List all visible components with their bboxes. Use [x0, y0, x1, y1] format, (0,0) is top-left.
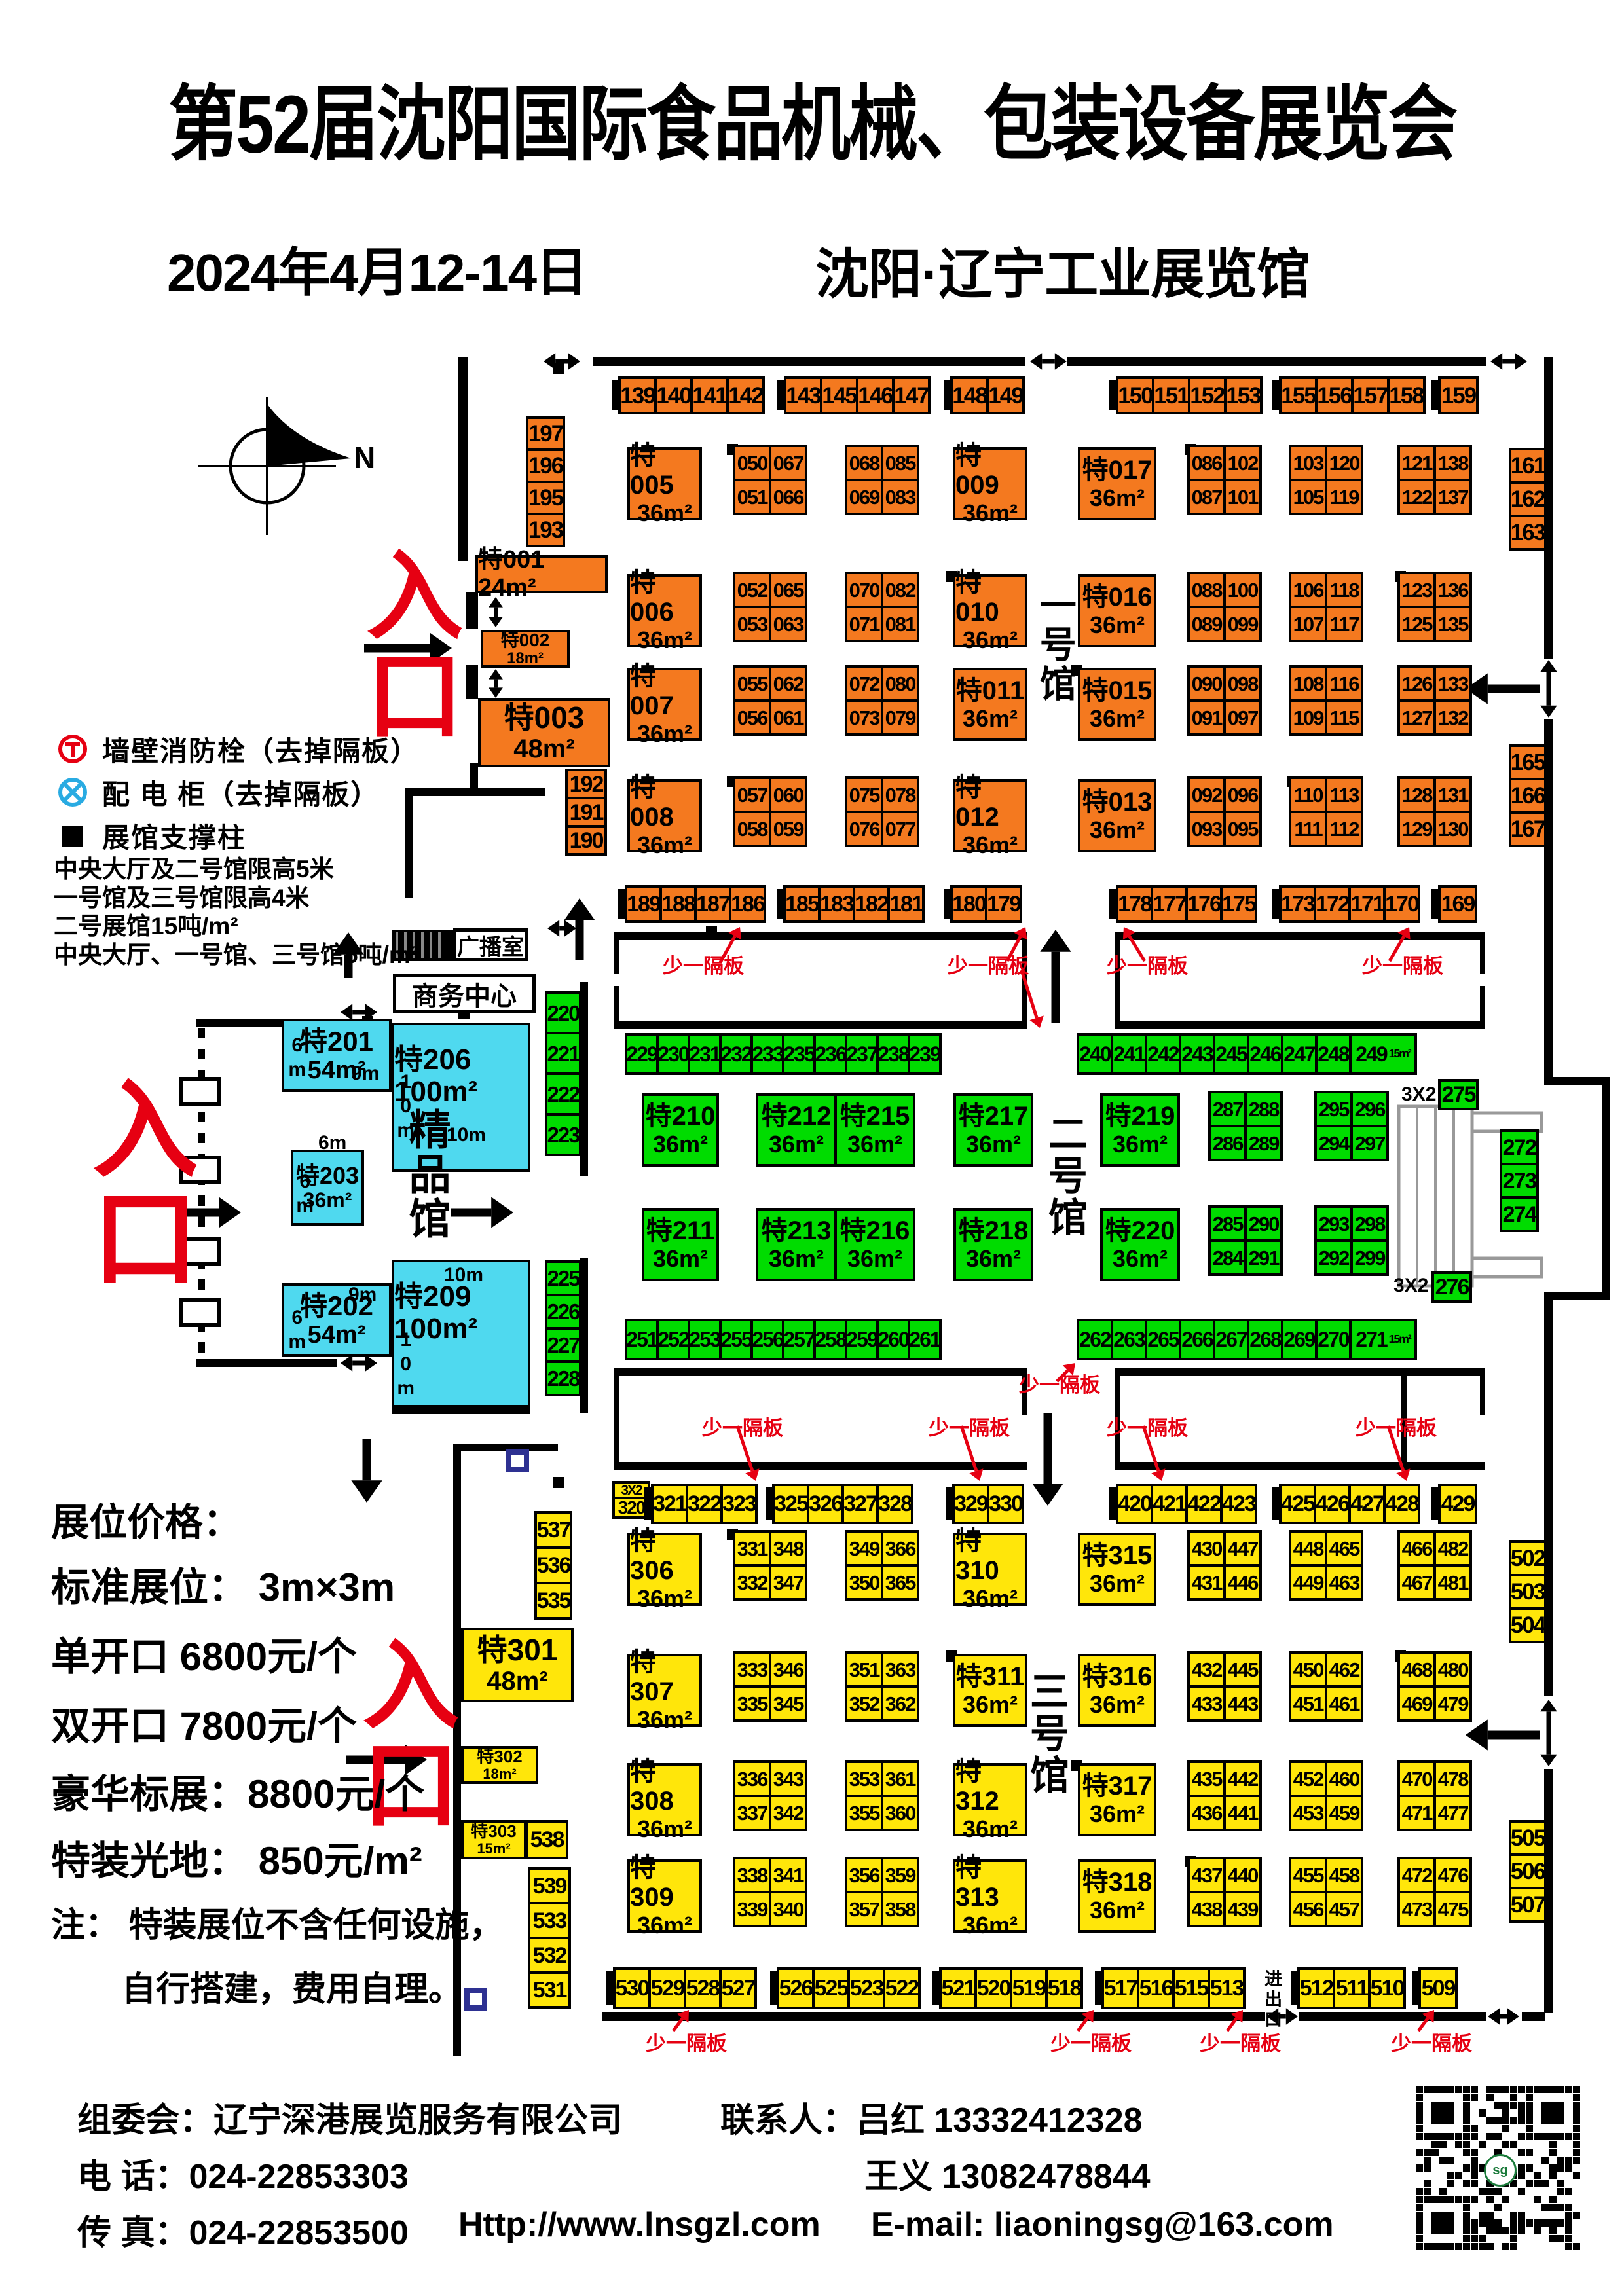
booth-strip: 180179 [953, 885, 1022, 923]
booth-228: 228 [545, 1360, 581, 1396]
booth-057: 057 [733, 776, 771, 813]
booth-473: 473 [1397, 1891, 1436, 1927]
booth-529: 529 [648, 1967, 686, 2009]
wall-stub [1431, 889, 1441, 919]
booth-502: 502 [1509, 1540, 1547, 1576]
booth-特315: 特31536m² [1078, 1533, 1156, 1606]
booth-230: 230 [656, 1033, 690, 1075]
booth-352: 352 [845, 1685, 883, 1722]
booth-strip: 537536535 [534, 1514, 572, 1620]
booth-strip: 148149 [953, 376, 1025, 414]
booth-strip: 429 [1441, 1484, 1477, 1524]
booth-453: 453 [1289, 1795, 1327, 1831]
booth-178: 178 [1116, 885, 1153, 923]
wall-stub [770, 1971, 779, 2005]
label-少一隔板: 少一隔板 [1019, 1375, 1100, 1396]
booth-477: 477 [1433, 1795, 1472, 1831]
booth-特006: 特00636m² [627, 574, 702, 647]
wall-stub [932, 1971, 942, 2005]
booth-243: 243 [1179, 1033, 1215, 1075]
booth-grid: 432445433443 [1190, 1654, 1262, 1722]
booth-特010: 特01036m² [953, 574, 1027, 647]
booth-特301: 特30148m² [461, 1628, 574, 1702]
booth-089: 089 [1187, 606, 1226, 642]
booth-158: 158 [1387, 376, 1426, 414]
booth-strip: 321322323 [654, 1484, 758, 1524]
booth-139: 139 [618, 376, 657, 414]
booth-165: 165 [1509, 744, 1547, 780]
booth-特218: 特21836m² [953, 1208, 1033, 1281]
wall-stub [1095, 1971, 1104, 2005]
booth-458: 458 [1325, 1857, 1363, 1893]
booth-299: 299 [1350, 1239, 1389, 1276]
booth-strip: 272273274 [1500, 1132, 1539, 1232]
booth-536: 536 [534, 1546, 572, 1584]
booth-245: 245 [1213, 1033, 1249, 1075]
booth-特313: 特31336m² [953, 1859, 1027, 1933]
booth-071: 071 [845, 606, 883, 642]
booth-248: 248 [1315, 1033, 1352, 1075]
label-少一隔板: 少一隔板 [1362, 956, 1443, 977]
booth-strip: 526525523522 [779, 1967, 921, 2009]
booth-087: 087 [1187, 479, 1226, 515]
booth-strip: 229230231232233235236237238239 [627, 1033, 942, 1075]
booth-143: 143 [784, 376, 822, 414]
booth-179: 179 [985, 885, 1022, 923]
booth-080: 080 [881, 665, 919, 702]
booth-459: 459 [1325, 1795, 1363, 1831]
booth-115: 115 [1325, 699, 1363, 736]
booth-strip: 420421422423 [1118, 1484, 1257, 1524]
wall-stub [1272, 1487, 1282, 1520]
booth-149: 149 [986, 376, 1025, 414]
entrance-2-label: 入口 [80, 1074, 190, 1291]
wall-stub [944, 889, 953, 919]
booth-466: 466 [1397, 1530, 1436, 1567]
booth-225: 225 [545, 1260, 581, 1296]
booth-286: 286 [1208, 1125, 1247, 1161]
booth-strip: 185183182181 [786, 885, 925, 923]
wall-stub [766, 1487, 775, 1520]
booth-427: 427 [1348, 1484, 1386, 1524]
booth-447: 447 [1223, 1530, 1262, 1567]
booth-470: 470 [1397, 1760, 1436, 1797]
booth-125: 125 [1397, 606, 1436, 642]
booth-271: 27115m² [1349, 1319, 1417, 1360]
label-10m: 10m [447, 1125, 486, 1145]
booth-170: 170 [1383, 885, 1420, 923]
booth-082: 082 [881, 572, 919, 608]
booth-091: 091 [1187, 699, 1226, 736]
booth-269: 269 [1281, 1319, 1318, 1360]
booth-strip: 197196195193 [526, 419, 565, 547]
booth-grid: 090098091097 [1190, 668, 1262, 736]
booth-261: 261 [908, 1319, 942, 1360]
booth-505: 505 [1509, 1820, 1547, 1856]
booth-357: 357 [845, 1891, 883, 1927]
wall-stub [612, 380, 621, 410]
booth-341: 341 [769, 1857, 807, 1893]
booth-strip: 143145146147 [786, 376, 931, 414]
booth-058: 058 [733, 811, 771, 847]
booth-518: 518 [1045, 1967, 1083, 2009]
booth-482: 482 [1433, 1530, 1472, 1567]
booth-450: 450 [1289, 1651, 1327, 1688]
booth-grid: 128131129130 [1400, 779, 1472, 847]
booth-067: 067 [769, 445, 807, 481]
booth-257: 257 [782, 1319, 816, 1360]
pricing-note-2: 自行搭建，费用自理。 [122, 1961, 462, 2011]
booth-292: 292 [1314, 1239, 1353, 1276]
booth-322: 322 [686, 1484, 723, 1524]
booth-grid: 336343337342 [735, 1763, 807, 1831]
booth-451: 451 [1289, 1685, 1327, 1722]
booth-516: 516 [1137, 1967, 1175, 2009]
booth-268: 268 [1247, 1319, 1283, 1360]
booth-156: 156 [1315, 376, 1354, 414]
booth-grid: 356359357358 [847, 1859, 919, 1927]
label-少一隔板: 少一隔板 [1391, 2033, 1472, 2054]
booth-特012: 特01236m² [953, 779, 1027, 852]
booth-grid: 126133127132 [1400, 668, 1472, 736]
booth-特009: 特00936m² [953, 447, 1027, 520]
booth-093: 093 [1187, 811, 1226, 847]
booth-426: 426 [1314, 1484, 1351, 1524]
booth-132: 132 [1433, 699, 1472, 736]
booth-431: 431 [1187, 1564, 1226, 1601]
booth-特017: 特01736m² [1078, 447, 1156, 520]
booth-330: 330 [987, 1484, 1024, 1524]
booth-特216: 特21636m² [834, 1208, 915, 1281]
booth-191: 191 [565, 797, 607, 828]
booth-355: 355 [845, 1795, 883, 1831]
booth-strip: 329330 [955, 1484, 1024, 1524]
hall-label-三号馆: 三号馆 [1025, 1671, 1066, 1796]
booth-343: 343 [769, 1760, 807, 1797]
booth-478: 478 [1433, 1760, 1472, 1797]
booth-特307: 特30736m² [627, 1654, 702, 1727]
booth-433: 433 [1187, 1685, 1226, 1722]
booth-136: 136 [1433, 572, 1472, 608]
contact-person: 联系人：吕红 13332412328 [720, 2092, 1143, 2141]
wall-stub [1431, 1487, 1441, 1520]
booth-526: 526 [777, 1967, 815, 2009]
booth-grid: 055062056061 [735, 668, 807, 736]
booth-455: 455 [1289, 1857, 1327, 1893]
booth-265: 265 [1145, 1319, 1181, 1360]
booth-grid: 110113111112 [1291, 779, 1363, 847]
booth-175: 175 [1220, 885, 1257, 923]
pricing-single: 单开口 6800元/个 [51, 1625, 357, 1682]
booth-242: 242 [1145, 1033, 1181, 1075]
booth-grid: 052065053063 [735, 574, 807, 642]
booth-189: 189 [625, 885, 662, 923]
booth-446: 446 [1223, 1564, 1262, 1601]
label-少一隔板: 少一隔板 [1200, 2033, 1281, 2054]
booth-layer: 1391401411421431451461471481491501511521… [0, 0, 1624, 2296]
booth-特007: 特00736m² [627, 668, 702, 741]
booth-358: 358 [881, 1891, 919, 1927]
booth-332: 332 [733, 1564, 771, 1601]
booth-118: 118 [1325, 572, 1363, 608]
booth-249: 24915m² [1349, 1033, 1417, 1075]
booth-strip: 276 [1434, 1271, 1472, 1303]
booth-strip: 139140141142 [621, 376, 765, 414]
booth-241: 241 [1111, 1033, 1147, 1075]
booth-295: 295 [1314, 1091, 1353, 1127]
legend: 墙壁消防栓（去掉隔板） 配 电 柜（去掉隔板） 展馆支撑柱 [58, 732, 419, 862]
booth-240: 240 [1077, 1033, 1113, 1075]
booth-350: 350 [845, 1564, 883, 1601]
booth-472: 472 [1397, 1857, 1436, 1893]
exit-label: 进出口 [1263, 1969, 1281, 2030]
qr-code: sg [1416, 2086, 1581, 2251]
booth-361: 361 [881, 1760, 919, 1797]
broadcast-room: 广播室 [453, 928, 528, 961]
booth-155: 155 [1279, 376, 1318, 414]
wall-stub [1272, 380, 1282, 410]
booth-grid: 455458456457 [1291, 1859, 1363, 1927]
pricing-heading: 展位价格： [51, 1491, 241, 1546]
legend-fire-hydrant: 墙壁消防栓（去掉隔板） [58, 732, 419, 766]
booth-特310: 特31036m² [953, 1533, 1027, 1606]
booth-grid: 331348332347 [735, 1533, 807, 1601]
booth-479: 479 [1433, 1685, 1472, 1722]
booth-263: 263 [1111, 1319, 1147, 1360]
label-9m: 9m [348, 1285, 377, 1305]
booth-grid: 437440438439 [1190, 1859, 1262, 1927]
booth-366: 366 [881, 1530, 919, 1567]
compass-n-label: N [354, 443, 375, 474]
booth-grid: 092096093095 [1190, 779, 1262, 847]
booth-053: 053 [733, 606, 771, 642]
booth-222: 222 [545, 1072, 581, 1116]
booth-233: 233 [750, 1033, 784, 1075]
booth-421: 421 [1151, 1484, 1188, 1524]
booth-221: 221 [545, 1032, 581, 1075]
booth-435: 435 [1187, 1760, 1226, 1797]
booth-527: 527 [719, 1967, 757, 2009]
booth-特212: 特21236m² [756, 1093, 837, 1167]
booth-247: 247 [1281, 1033, 1318, 1075]
booth-特002: 特00218m² [481, 630, 570, 668]
booth-272: 272 [1500, 1129, 1539, 1165]
booth-223: 223 [545, 1113, 581, 1156]
booth-116: 116 [1325, 665, 1363, 702]
booth-特316: 特31636m² [1078, 1654, 1156, 1727]
legend-pillar: 展馆支撑柱 [58, 818, 419, 852]
booth-特015: 特01536m² [1078, 668, 1156, 741]
booth-251: 251 [625, 1319, 659, 1360]
booth-521: 521 [939, 1967, 977, 2009]
contact-phone: 电 话：024-22853303 [77, 2149, 409, 2198]
booth-182: 182 [853, 885, 890, 923]
booth-特003: 特00348m² [478, 698, 610, 767]
booth-442: 442 [1223, 1760, 1262, 1797]
stair-dim-bottom: 3X2 [1393, 1275, 1428, 1296]
booth-363: 363 [881, 1651, 919, 1688]
booth-056: 056 [733, 699, 771, 736]
booth-528: 528 [684, 1967, 722, 2009]
booth-336: 336 [733, 1760, 771, 1797]
booth-511: 511 [1333, 1967, 1371, 2009]
booth-特213: 特21336m² [756, 1208, 837, 1281]
booth-086: 086 [1187, 445, 1226, 481]
booth-特008: 特00836m² [627, 779, 702, 852]
booth-452: 452 [1289, 1760, 1327, 1797]
booth-grid: 472476473475 [1400, 1859, 1472, 1927]
booth-436: 436 [1187, 1795, 1226, 1831]
booth-185: 185 [783, 885, 821, 923]
booth-130: 130 [1433, 811, 1472, 847]
booth-467: 467 [1397, 1564, 1436, 1601]
booth-120: 120 [1325, 445, 1363, 481]
booth-338: 338 [733, 1857, 771, 1893]
booth-525: 525 [812, 1967, 850, 2009]
booth-strip: 530529528527 [616, 1967, 757, 2009]
booth-290: 290 [1244, 1205, 1283, 1242]
booth-183: 183 [818, 885, 855, 923]
wall-stub [777, 889, 786, 919]
booth-grid: 121138122137 [1400, 447, 1472, 515]
pricing-deluxe: 豪华标展：8800元/个 [51, 1762, 424, 1819]
pricing-standard: 标准展位： 3m×3m [51, 1556, 395, 1613]
booth-strip: 178177176175 [1118, 885, 1257, 923]
booth-327: 327 [841, 1484, 879, 1524]
booth-123: 123 [1397, 572, 1436, 608]
booth-133: 133 [1433, 665, 1472, 702]
booth-grid: 351363352362 [847, 1654, 919, 1722]
booth-288: 288 [1244, 1091, 1283, 1127]
booth-532: 532 [528, 1937, 571, 1974]
booth-141: 141 [690, 376, 729, 414]
booth-461: 461 [1325, 1685, 1363, 1722]
booth-252: 252 [656, 1319, 690, 1360]
booth-101: 101 [1223, 479, 1262, 515]
booth-077: 077 [881, 811, 919, 847]
booth-grid: 068085069083 [847, 447, 919, 515]
booth-262: 262 [1077, 1319, 1113, 1360]
booth-266: 266 [1179, 1319, 1215, 1360]
booth-102: 102 [1223, 445, 1262, 481]
booth-510: 510 [1368, 1967, 1406, 2009]
booth-339: 339 [733, 1891, 771, 1927]
booth-099: 099 [1223, 606, 1262, 642]
booth-100: 100 [1223, 572, 1262, 608]
booth-grid: 448465449463 [1291, 1533, 1363, 1601]
booth-grid: 070082071081 [847, 574, 919, 642]
booth-strip: 502503504 [1509, 1543, 1547, 1643]
booth-150: 150 [1116, 376, 1154, 414]
booth-特311: 特31136m² [953, 1654, 1027, 1727]
booth-186: 186 [729, 885, 766, 923]
booth-特312: 特31236m² [953, 1763, 1027, 1836]
booth-特215: 特21536m² [834, 1093, 915, 1167]
booth-098: 098 [1223, 665, 1262, 702]
booth-503: 503 [1509, 1574, 1547, 1610]
booth-131: 131 [1433, 776, 1472, 813]
booth-grid: 435442436441 [1190, 1763, 1262, 1831]
booth-161: 161 [1509, 448, 1547, 484]
booth-特005: 特00536m² [627, 447, 702, 520]
contact-website: Http://www.lnsgzl.com [458, 2205, 821, 2244]
booth-356: 356 [845, 1857, 883, 1893]
booth-090: 090 [1187, 665, 1226, 702]
stair-dim-top: 3X2 [1401, 1084, 1436, 1104]
booth-239: 239 [908, 1033, 942, 1075]
booth-297: 297 [1350, 1125, 1389, 1161]
booth-235: 235 [782, 1033, 816, 1075]
booth-517: 517 [1101, 1967, 1139, 2009]
booth-180: 180 [950, 885, 987, 923]
booth-070: 070 [845, 572, 883, 608]
booth-strip: 155156157158 [1282, 376, 1426, 414]
booth-193: 193 [526, 513, 565, 547]
booth-特302: 特30218m² [461, 1746, 538, 1784]
booth-088: 088 [1187, 572, 1226, 608]
wall-stub [618, 889, 627, 919]
booth-231: 231 [688, 1033, 722, 1075]
booth-172: 172 [1314, 885, 1351, 923]
booth-273: 273 [1500, 1163, 1539, 1199]
booth-423: 423 [1220, 1484, 1257, 1524]
booth-122: 122 [1397, 479, 1436, 515]
booth-121: 121 [1397, 445, 1436, 481]
booth-522: 522 [883, 1967, 921, 2009]
booth-strip: 189188187186 [627, 885, 766, 923]
booth-531: 531 [528, 1971, 571, 2009]
booth-strip: 225226227228 [545, 1263, 581, 1396]
booth-特220: 特22036m² [1100, 1208, 1180, 1281]
booth-196: 196 [526, 448, 565, 483]
booth-grid: 338341339340 [735, 1859, 807, 1927]
booth-grid: 075078076077 [847, 779, 919, 847]
booth-060: 060 [769, 776, 807, 813]
booth-449: 449 [1289, 1564, 1327, 1601]
booth-232: 232 [719, 1033, 753, 1075]
booth-443: 443 [1223, 1685, 1262, 1722]
booth-176: 176 [1185, 885, 1223, 923]
booth-073: 073 [845, 699, 883, 736]
booth-146: 146 [856, 376, 895, 414]
booth-351: 351 [845, 1651, 883, 1688]
booth-050: 050 [733, 445, 771, 481]
booth-107: 107 [1289, 606, 1327, 642]
booth-296: 296 [1350, 1091, 1389, 1127]
booth-197: 197 [526, 416, 565, 451]
booth-439: 439 [1223, 1891, 1262, 1927]
booth-grid: 295296294297 [1317, 1093, 1389, 1161]
booth-096: 096 [1223, 776, 1262, 813]
booth-095: 095 [1223, 811, 1262, 847]
booth-特211: 特21136m² [642, 1208, 719, 1281]
booth-069: 069 [845, 479, 883, 515]
booth-276: 276 [1431, 1271, 1472, 1303]
booth-148: 148 [950, 376, 989, 414]
wall-stub [944, 380, 953, 410]
booth-strip: 169 [1441, 885, 1477, 923]
booth-103: 103 [1289, 445, 1327, 481]
label-少一隔板: 少一隔板 [1356, 1418, 1437, 1439]
booth-strip: 512511510 [1300, 1967, 1406, 2009]
booth-065: 065 [769, 572, 807, 608]
booth-326: 326 [807, 1484, 844, 1524]
booth-432: 432 [1187, 1651, 1226, 1688]
booth-grid: 072080073079 [847, 668, 919, 736]
booth-237: 237 [845, 1033, 879, 1075]
booth-457: 457 [1325, 1891, 1363, 1927]
booth-328: 328 [876, 1484, 913, 1524]
